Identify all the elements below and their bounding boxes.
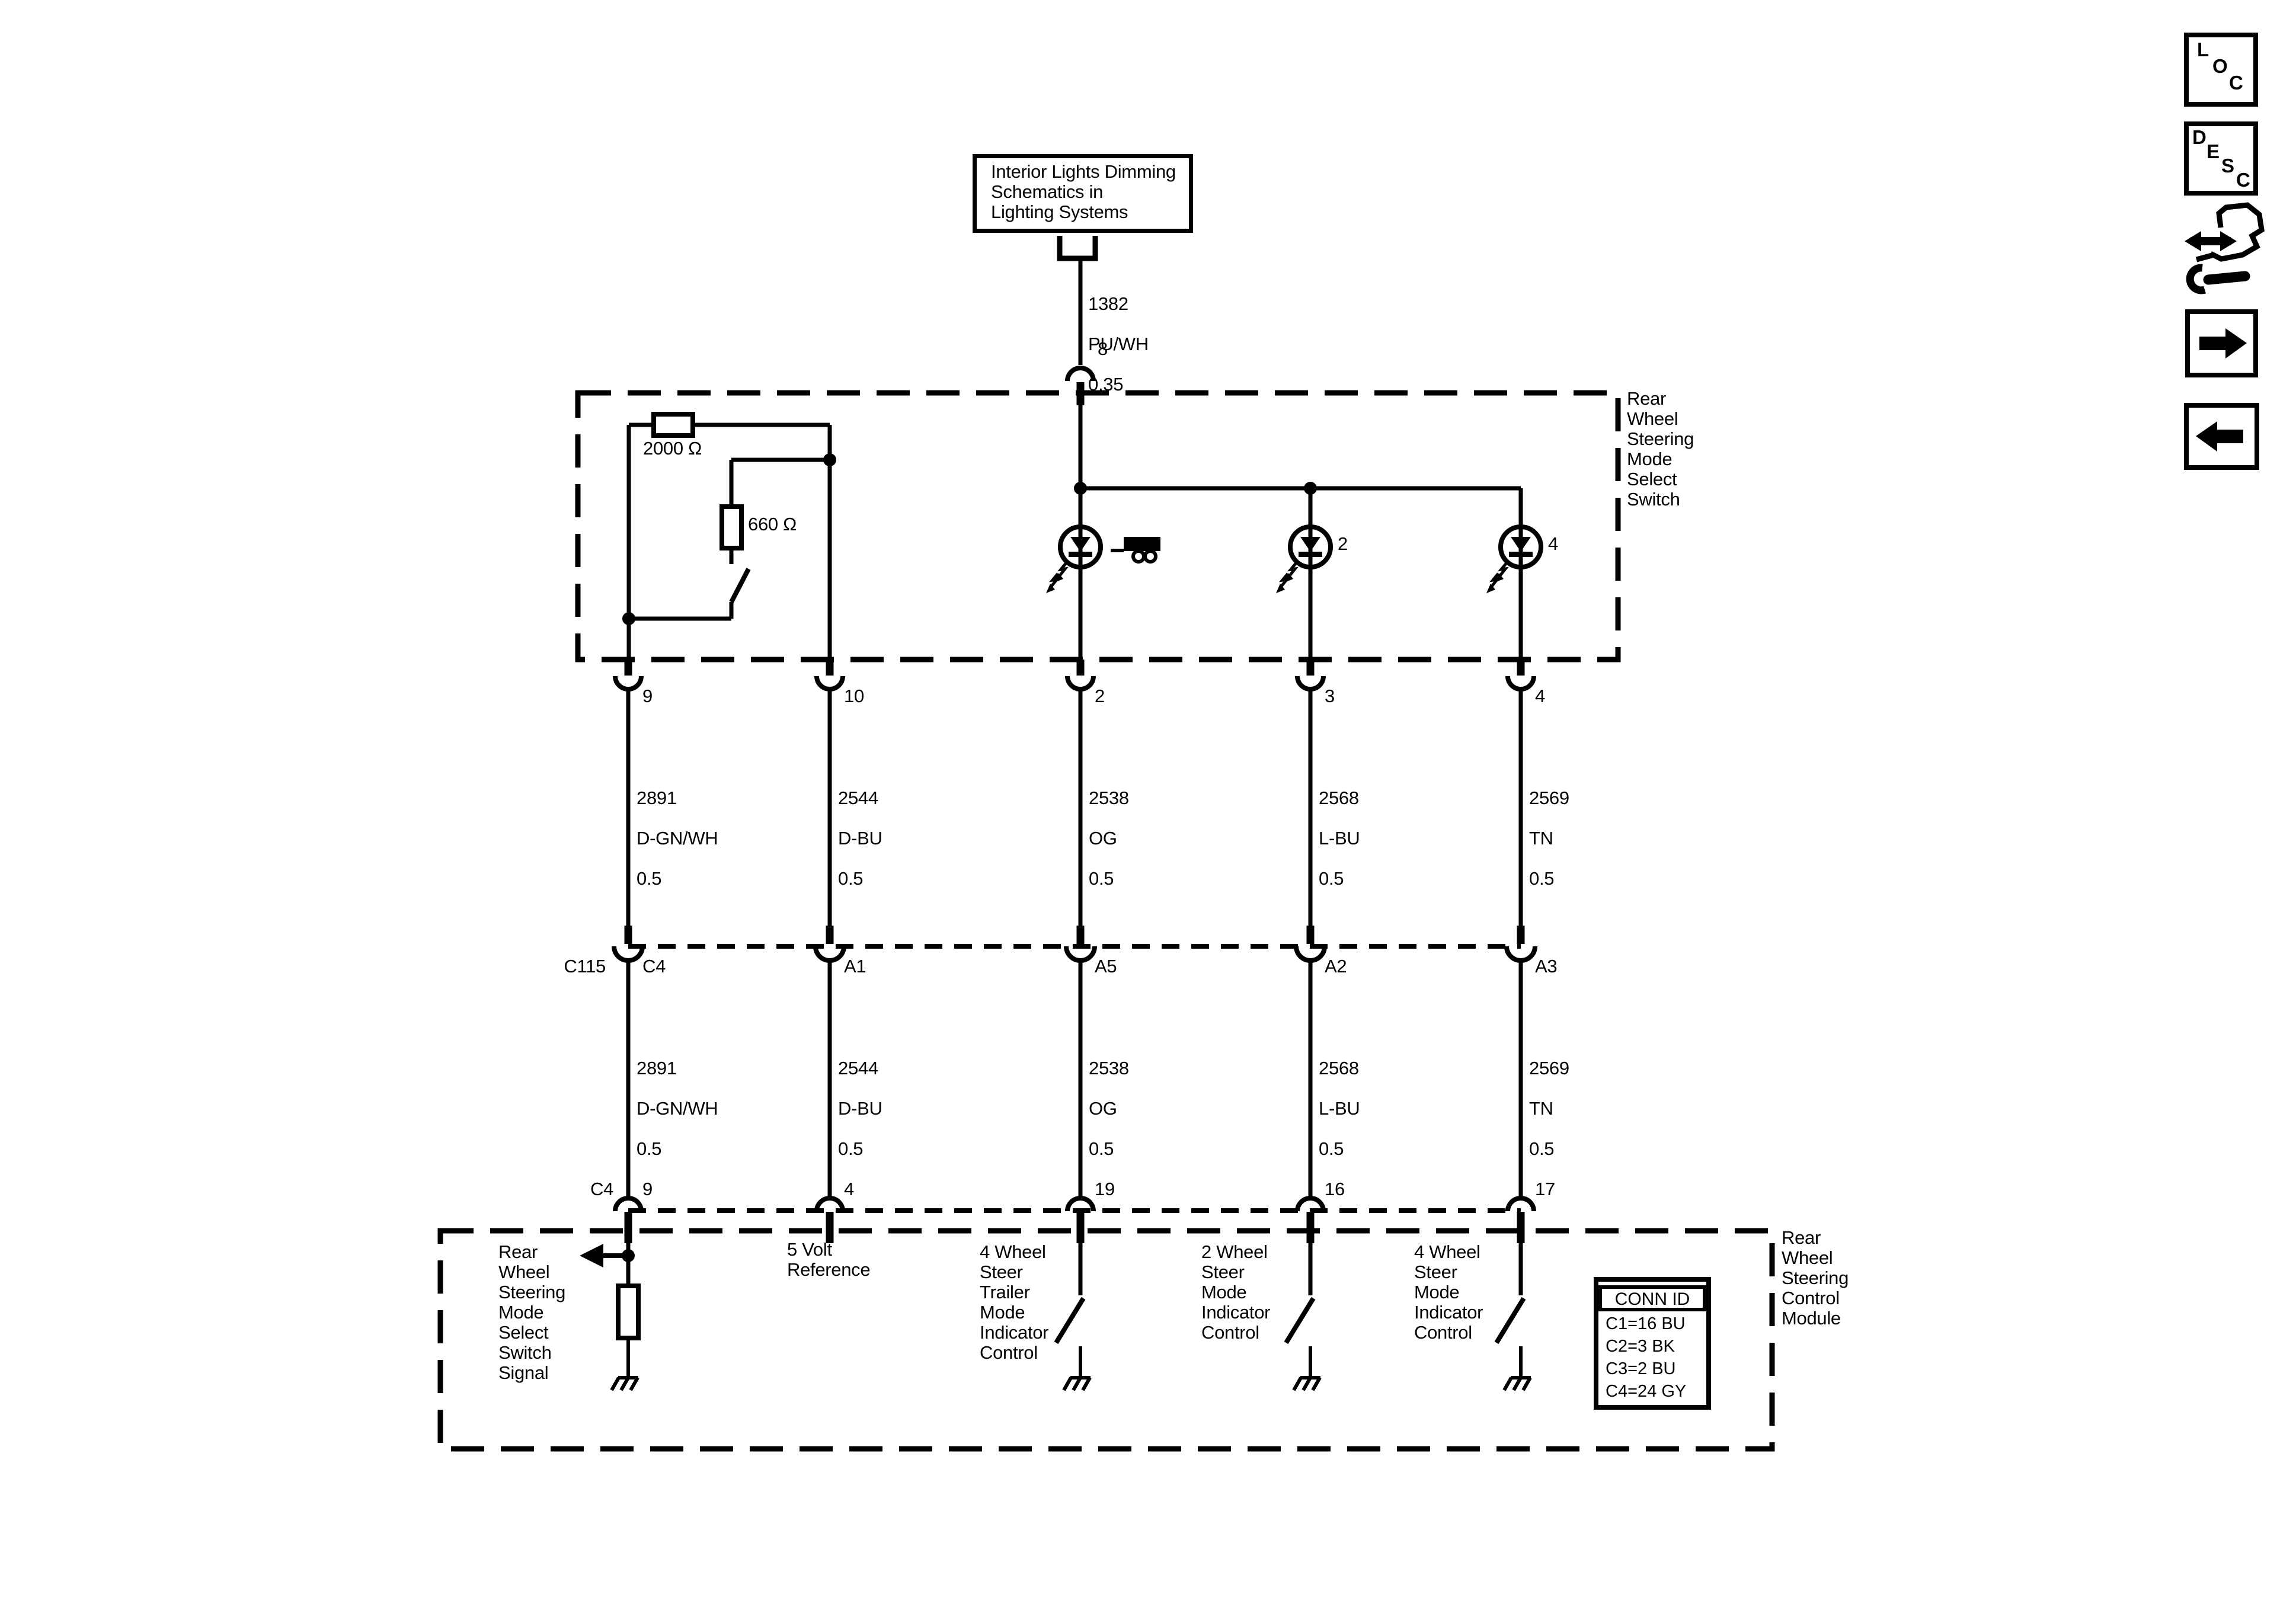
cavity-label: A2 bbox=[1325, 956, 1347, 977]
module-function-label: 5 Volt Reference bbox=[787, 1240, 870, 1280]
wire-label: 2891 D-GN/WH 0.5 bbox=[637, 768, 718, 909]
wire-label: 2544 D-BU 0.5 bbox=[838, 768, 882, 909]
driver-switch-blade bbox=[1496, 1298, 1524, 1343]
right-arrow-icon bbox=[2190, 314, 2253, 373]
wire-gauge: 0.5 bbox=[1089, 1139, 1129, 1159]
resistor-660ohm bbox=[722, 507, 741, 548]
switch-contact-blade bbox=[731, 569, 749, 602]
conn-id-row: C3=2 BU bbox=[1606, 1361, 1706, 1378]
desc-button[interactable]: D E S C bbox=[2184, 121, 2258, 196]
module-function-label: 4 Wheel Steer Mode Indicator Control bbox=[1414, 1242, 1483, 1343]
loc-button[interactable]: L O C bbox=[2184, 33, 2258, 107]
switch-connector-row bbox=[615, 660, 1534, 929]
connector-name-c115: C115 bbox=[527, 956, 606, 977]
module-function-label: 2 Wheel Steer Mode Indicator Control bbox=[1201, 1242, 1270, 1343]
signal-direction-arrow bbox=[580, 1244, 603, 1267]
wire-label: 2569 TN 0.5 bbox=[1529, 1038, 1569, 1179]
desc-letter: D bbox=[2192, 127, 2207, 147]
4wheel-indicator-driver bbox=[1496, 1243, 1531, 1390]
cavity-label: A1 bbox=[844, 956, 866, 977]
chassis-ground-icon bbox=[1294, 1378, 1320, 1390]
previous-page-button[interactable] bbox=[2184, 403, 2259, 470]
led-4-label: 4 bbox=[1548, 534, 1558, 554]
wire-gauge: 0.5 bbox=[637, 1139, 718, 1159]
wire-color: D-GN/WH bbox=[637, 828, 718, 849]
module-function-label: Rear Wheel Steering Mode Select Switch S… bbox=[498, 1242, 565, 1383]
conn-id-row: C2=3 BK bbox=[1606, 1338, 1706, 1355]
chassis-ground-icon bbox=[1504, 1378, 1531, 1390]
loc-letter: C bbox=[2229, 73, 2243, 92]
pin-label: 3 bbox=[1325, 686, 1335, 706]
module-function-label: 4 Wheel Steer Trailer Mode Indicator Con… bbox=[980, 1242, 1048, 1363]
pin-label: 2 bbox=[1095, 686, 1105, 706]
schematic-page: Interior Lights Dimming Schematics in Li… bbox=[0, 0, 2296, 1610]
cavity-label: C4 bbox=[642, 956, 666, 977]
wire-color: D-BU bbox=[838, 828, 882, 849]
indicator-led-bus bbox=[1074, 405, 1521, 527]
desc-letter: E bbox=[2207, 142, 2220, 161]
pin-label: 4 bbox=[1535, 686, 1545, 706]
trailer-indicator-driver bbox=[1056, 1243, 1091, 1390]
led-trailer-mode-indicator bbox=[1046, 527, 1101, 660]
wire-circuit: 2544 bbox=[838, 788, 882, 808]
wire-gauge: 0.5 bbox=[838, 869, 882, 889]
wire-color: OG bbox=[1089, 1099, 1129, 1119]
chassis-ground-icon bbox=[1064, 1378, 1091, 1390]
chassis-ground-icon bbox=[612, 1378, 638, 1390]
wire-circuit: 2568 bbox=[1319, 1058, 1360, 1078]
wire-gauge: 0.5 bbox=[838, 1139, 882, 1159]
resistor-2000ohm bbox=[654, 414, 693, 436]
wire-circuit: 2568 bbox=[1319, 788, 1360, 808]
desc-letter: C bbox=[2236, 170, 2250, 190]
wire-label: 2538 OG 0.5 bbox=[1089, 1038, 1129, 1179]
reference-link-label: Interior Lights Dimming Schematics in Li… bbox=[991, 162, 1176, 222]
conn-id-row: C4=24 GY bbox=[1606, 1383, 1706, 1400]
resistor-2000-label: 2000 Ω bbox=[643, 438, 702, 459]
led-4wheel-mode-indicator bbox=[1486, 527, 1541, 660]
wire-label: 2891 D-GN/WH 0.5 bbox=[637, 1038, 718, 1179]
wire-circuit: 2569 bbox=[1529, 1058, 1569, 1078]
loc-letter: L bbox=[2197, 40, 2209, 59]
cavity-label: A3 bbox=[1535, 956, 1557, 977]
desc-letter: S bbox=[2221, 156, 2234, 175]
2wheel-indicator-driver bbox=[1286, 1243, 1320, 1390]
switch-box-title: Rear Wheel Steering Mode Select Switch bbox=[1627, 389, 1694, 510]
pin-label: 4 bbox=[844, 1179, 854, 1199]
wire-circuit: 2538 bbox=[1089, 788, 1129, 808]
pin-label: 17 bbox=[1535, 1179, 1555, 1199]
driver-switch-blade bbox=[1286, 1298, 1313, 1343]
next-page-button[interactable] bbox=[2185, 309, 2258, 377]
schematic-canvas bbox=[0, 0, 2296, 1610]
pin-label: 9 bbox=[642, 686, 653, 706]
trailer-icon bbox=[1111, 537, 1160, 562]
driver-switch-blade bbox=[1056, 1298, 1083, 1343]
wire-gauge: 0.5 bbox=[1089, 869, 1129, 889]
conn-id-header: CONN ID bbox=[1600, 1289, 1705, 1310]
wire-color: L-BU bbox=[1319, 1099, 1360, 1119]
wire-circuit: 2538 bbox=[1089, 1058, 1129, 1078]
conn-id-row: C1=16 BU bbox=[1606, 1315, 1706, 1333]
switch-signal-input-circuit bbox=[580, 1243, 638, 1390]
connector-c115-row bbox=[614, 926, 1535, 1198]
pin-label: 16 bbox=[1325, 1179, 1345, 1199]
wire-gauge: 0.5 bbox=[1529, 1139, 1569, 1159]
pin-label: 19 bbox=[1095, 1179, 1115, 1199]
wire-gauge: 0.5 bbox=[1319, 1139, 1360, 1159]
wire-circuit: 2891 bbox=[637, 1058, 718, 1078]
module-connector-label: C4 bbox=[535, 1179, 613, 1199]
wire-color: TN bbox=[1529, 828, 1569, 849]
junction-dot bbox=[1074, 482, 1087, 495]
pin-label: 9 bbox=[642, 1179, 653, 1199]
wire-circuit: 1382 bbox=[1088, 294, 1149, 314]
pin-label: 10 bbox=[844, 686, 864, 706]
wrench-arrow-icon[interactable] bbox=[2185, 205, 2262, 290]
pull-resistor bbox=[618, 1286, 638, 1338]
loc-letter: O bbox=[2212, 56, 2228, 76]
wire-gauge: 0.5 bbox=[1319, 869, 1360, 889]
led-2-label: 2 bbox=[1338, 534, 1348, 554]
wire-gauge: 0.5 bbox=[637, 869, 718, 889]
wire-color: D-GN/WH bbox=[637, 1099, 718, 1119]
led-2wheel-mode-indicator bbox=[1276, 527, 1331, 660]
left-arrow-icon bbox=[2189, 408, 2255, 465]
wire-color: L-BU bbox=[1319, 828, 1360, 849]
wire-label: 2568 L-BU 0.5 bbox=[1319, 768, 1360, 909]
wire-gauge: 0.5 bbox=[1529, 869, 1569, 889]
wire-color: OG bbox=[1089, 828, 1129, 849]
pin-label-8: 8 bbox=[1098, 339, 1108, 359]
junction-dot bbox=[622, 612, 635, 625]
wire-label: 2568 L-BU 0.5 bbox=[1319, 1038, 1360, 1179]
wire-circuit: 2569 bbox=[1529, 788, 1569, 808]
module-connector-row bbox=[615, 1198, 1534, 1243]
resistor-660-label: 660 Ω bbox=[748, 514, 797, 534]
wire-label: 2569 TN 0.5 bbox=[1529, 768, 1569, 909]
wire-gauge: 0.35 bbox=[1088, 375, 1149, 395]
wire-circuit: 2891 bbox=[637, 788, 718, 808]
cavity-label: A5 bbox=[1095, 956, 1117, 977]
wire-color: TN bbox=[1529, 1099, 1569, 1119]
wire-label: 2544 D-BU 0.5 bbox=[838, 1038, 882, 1179]
wire-color: D-BU bbox=[838, 1099, 882, 1119]
reference-link-box[interactable]: Interior Lights Dimming Schematics in Li… bbox=[973, 154, 1193, 233]
wire-label: 2538 OG 0.5 bbox=[1089, 768, 1129, 909]
module-box-title: Rear Wheel Steering Control Module bbox=[1782, 1228, 1849, 1329]
wire-circuit: 2544 bbox=[838, 1058, 882, 1078]
